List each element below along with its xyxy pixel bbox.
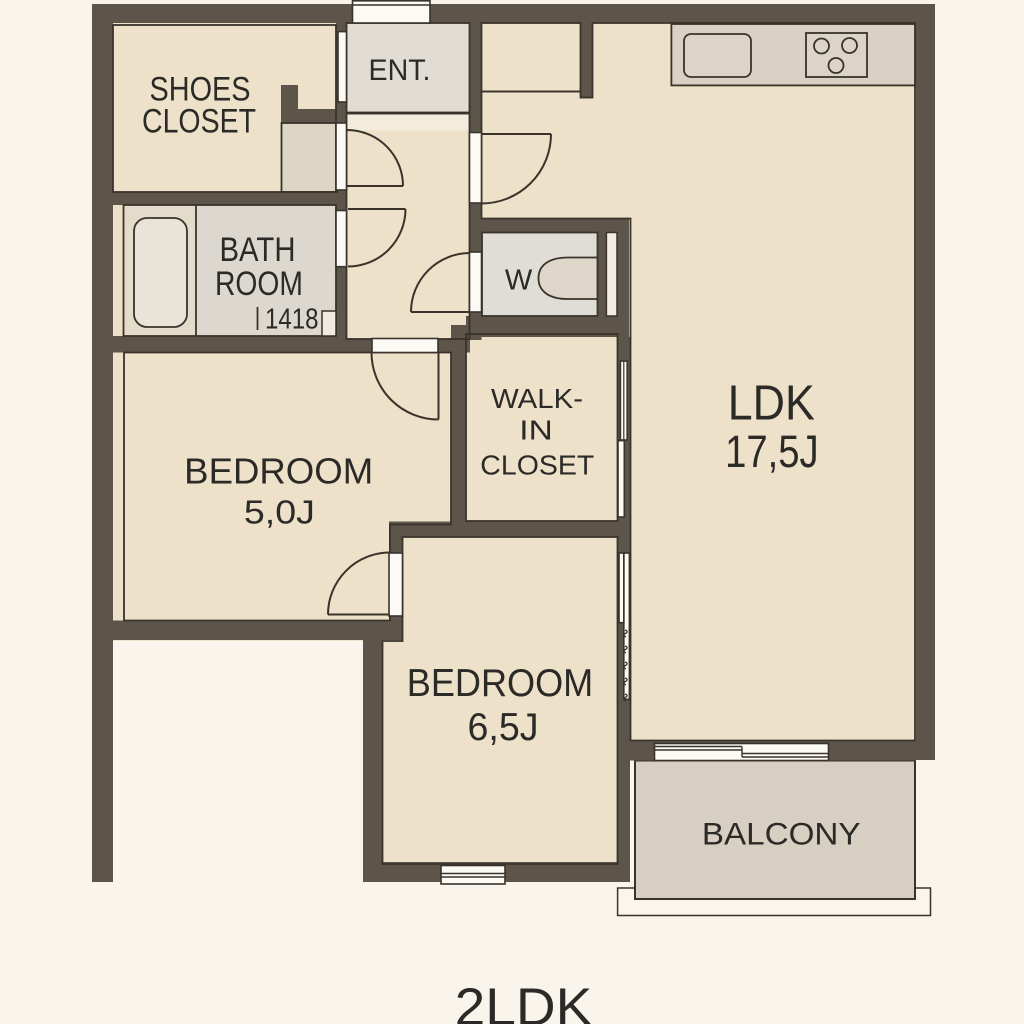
svg-text:CLOSET: CLOSET xyxy=(480,450,594,481)
svg-text:W: W xyxy=(505,265,533,297)
svg-text:BEDROOM: BEDROOM xyxy=(407,662,594,705)
svg-text:LDK: LDK xyxy=(728,377,815,431)
svg-text:6,5J: 6,5J xyxy=(468,706,539,749)
svg-text:CLOSET: CLOSET xyxy=(142,103,256,141)
svg-text:ENT.: ENT. xyxy=(369,54,431,87)
svg-text:BEDROOM: BEDROOM xyxy=(184,450,373,491)
svg-text:2LDK: 2LDK xyxy=(455,978,593,1024)
svg-text:1418: 1418 xyxy=(265,304,319,336)
svg-text:WALK-: WALK- xyxy=(491,383,583,414)
svg-text:ROOM: ROOM xyxy=(215,265,303,303)
svg-text:IN: IN xyxy=(519,414,552,445)
svg-text:BATH: BATH xyxy=(220,231,296,269)
svg-text:5,0J: 5,0J xyxy=(244,494,315,531)
svg-text:17,5J: 17,5J xyxy=(725,426,819,477)
svg-text:BALCONY: BALCONY xyxy=(702,817,861,852)
